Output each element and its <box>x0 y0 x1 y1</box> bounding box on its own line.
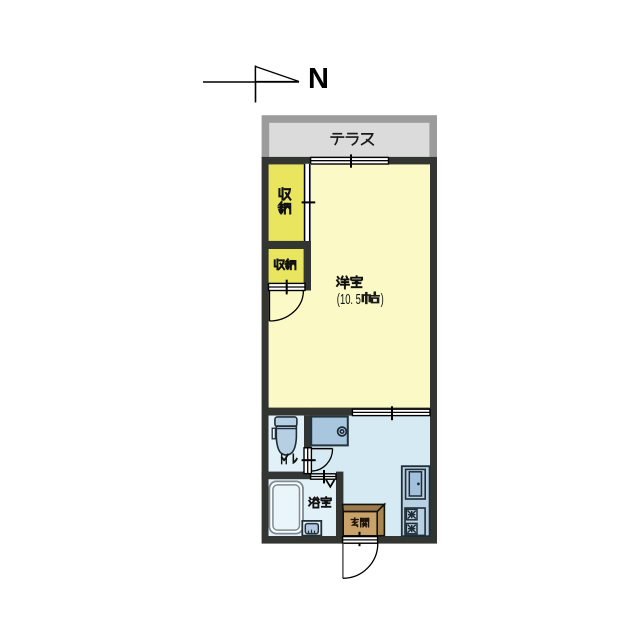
svg-text:): ) <box>381 291 384 308</box>
svg-text:(10. 5: (10. 5 <box>337 291 361 308</box>
svg-text:N: N <box>308 63 329 95</box>
